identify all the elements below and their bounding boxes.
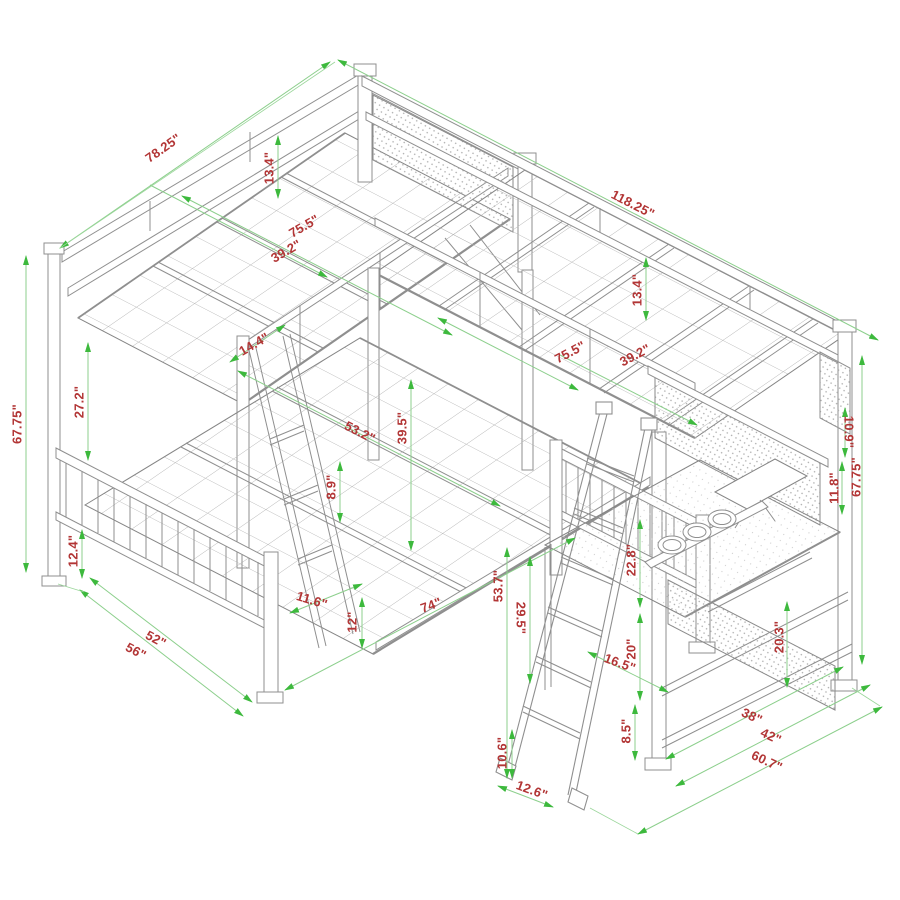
dim-13-4-left: 13.4": [262, 152, 277, 184]
dim-8-9: 8.9": [324, 474, 339, 499]
ladder-foot-right: [568, 788, 588, 810]
ladder-hook-right: [641, 418, 657, 430]
dim-67-75-left: 67.75": [10, 404, 25, 444]
dim-22-8: 22.8": [624, 544, 639, 576]
dim-12: 12": [345, 611, 360, 632]
dim-10-9: 10.9": [842, 416, 857, 448]
dim-29-5: 29.5": [514, 602, 529, 634]
loft-right-post-cap: [833, 320, 856, 332]
technical-drawing: 78.25" 13.4" 75.5" 39.2" 118.25" 13.4" 7…: [0, 0, 900, 900]
dim-39-5: 39.5": [395, 412, 410, 444]
left-back-post-foot: [42, 576, 66, 586]
dimline-52: [90, 578, 252, 702]
dim-12-4: 12.4": [66, 535, 81, 567]
loft-front-post-foot: [645, 758, 671, 770]
dim-13-4-right: 13.4": [630, 274, 645, 306]
dim-10-6: 10.6": [495, 737, 510, 769]
left-back-post: [48, 250, 60, 582]
full-bed-deck: [85, 338, 648, 654]
full-headboard-left-post: [550, 440, 562, 575]
footboard-right-post-foot: [257, 692, 283, 703]
workstation: [545, 366, 852, 748]
dim-67-75-right: 67.75": [849, 457, 864, 497]
dim-11-8: 11.8": [827, 472, 842, 504]
dimline-60-7: [638, 707, 882, 834]
dim-20-3: 20.3": [772, 621, 787, 653]
footboard-right-post: [264, 552, 278, 700]
left-back-post-cap: [44, 243, 64, 254]
dim-8-5: 8.5": [619, 718, 634, 743]
dimline-56: [80, 590, 243, 716]
dim-53-7: 53.7": [491, 570, 506, 602]
dim-27-2: 27.2": [72, 386, 87, 418]
ladder-hook-left: [596, 402, 612, 414]
